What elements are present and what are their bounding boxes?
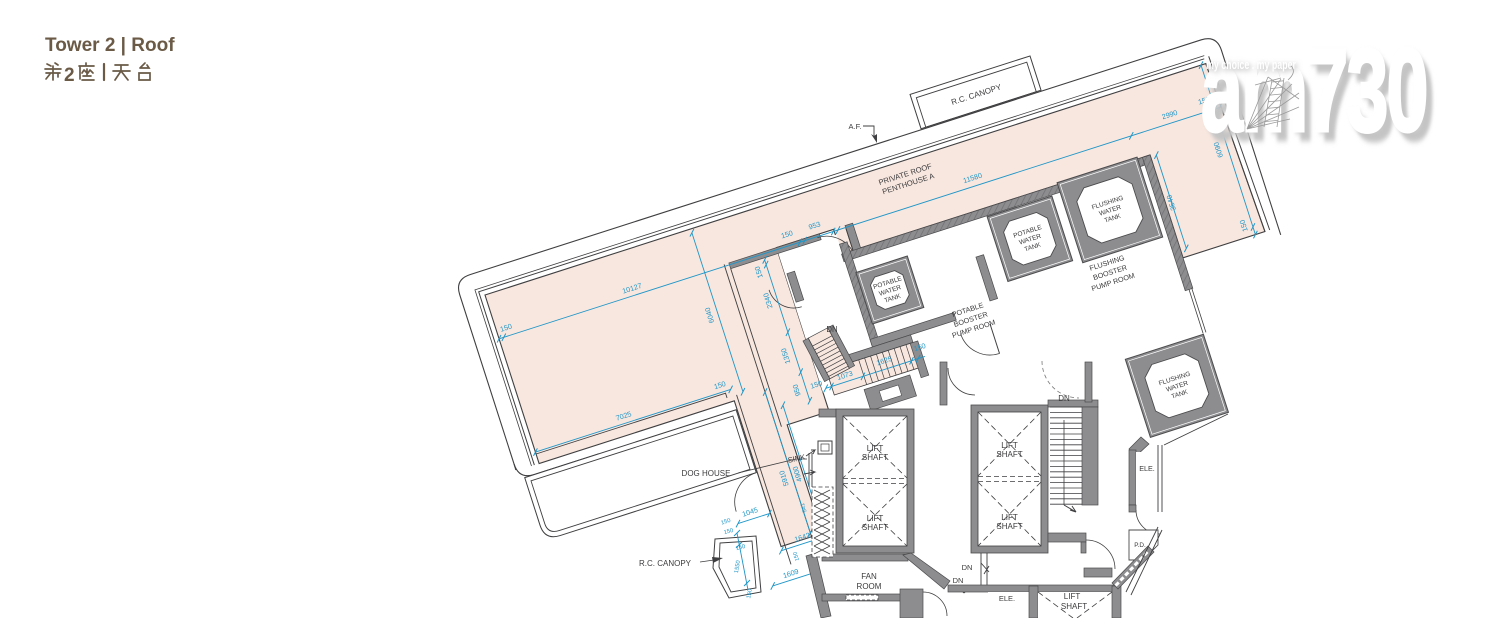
- svg-text:SHAFT: SHAFT: [996, 450, 1022, 459]
- svg-text:SHAFT: SHAFT: [862, 453, 888, 462]
- svg-text:DN: DN: [826, 325, 837, 334]
- svg-text:LIFT: LIFT: [1001, 441, 1018, 450]
- svg-text:ELE.: ELE.: [999, 594, 1015, 603]
- svg-text:FAN: FAN: [861, 572, 877, 581]
- svg-text:P.D.: P.D.: [1134, 542, 1146, 549]
- svg-text:A.F.: A.F.: [849, 122, 862, 131]
- svg-text:ROOM: ROOM: [857, 582, 882, 591]
- svg-text:R.C. CANOPY: R.C. CANOPY: [639, 559, 692, 568]
- svg-text:LIFT: LIFT: [867, 514, 884, 523]
- svg-text:Tower 2 | Roof: Tower 2 | Roof: [45, 35, 175, 56]
- svg-text:DN: DN: [962, 563, 973, 572]
- svg-text:ELE.: ELE.: [1139, 464, 1155, 473]
- svg-text:SHAFT: SHAFT: [862, 523, 888, 532]
- svg-text:my choice . my paper: my choice . my paper: [1206, 58, 1296, 72]
- svg-text:2: 2: [64, 65, 75, 86]
- svg-text:DN: DN: [953, 576, 964, 585]
- svg-text:LIFT: LIFT: [1001, 513, 1018, 522]
- svg-text:DOG HOUSE: DOG HOUSE: [682, 469, 731, 478]
- svg-text:am730: am730: [1201, 24, 1427, 156]
- svg-text:LIFT: LIFT: [867, 444, 884, 453]
- svg-text:SHAFT: SHAFT: [1061, 602, 1087, 611]
- svg-text:DN: DN: [1058, 394, 1070, 403]
- svg-text:LIFT: LIFT: [1064, 592, 1081, 601]
- svg-text:SHAFT: SHAFT: [996, 522, 1022, 531]
